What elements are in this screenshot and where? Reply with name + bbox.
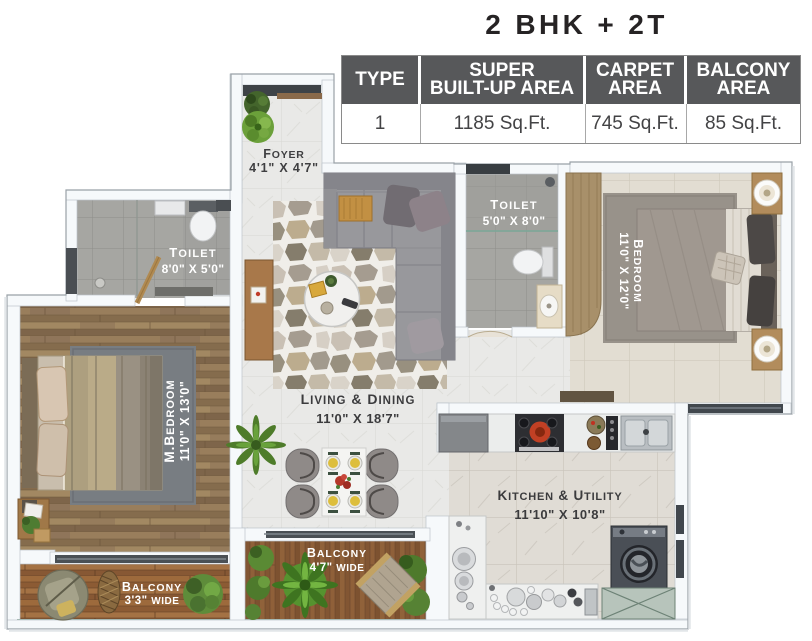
svg-text:4'7" WIDE: 4'7" WIDE <box>310 562 365 574</box>
svg-text:TOILET: TOILET <box>490 197 538 212</box>
svg-text:BALCONY: BALCONY <box>122 580 182 594</box>
svg-text:BEDROOM: BEDROOM <box>631 239 646 303</box>
svg-text:KITCHEN & UTILITY: KITCHEN & UTILITY <box>498 488 623 503</box>
svg-text:11'10" X 10'8": 11'10" X 10'8" <box>514 507 605 522</box>
svg-text:TOILET: TOILET <box>169 245 217 260</box>
svg-text:BALCONY: BALCONY <box>307 546 367 560</box>
svg-text:FOYER: FOYER <box>263 147 304 161</box>
svg-text:11'0" X 13'0": 11'0" X 13'0" <box>178 381 192 462</box>
svg-text:4'1" X 4'7": 4'1" X 4'7" <box>249 161 319 175</box>
svg-text:11'0" X 18'7": 11'0" X 18'7" <box>316 411 400 426</box>
svg-text:3'3" WIDE: 3'3" WIDE <box>125 595 180 607</box>
svg-text:8'0" X 5'0": 8'0" X 5'0" <box>162 262 225 276</box>
svg-text:11'0" X 12'0": 11'0" X 12'0" <box>617 232 631 310</box>
svg-text:M.BEDROOM: M.BEDROOM <box>162 379 177 462</box>
svg-text:5'0" X 8'0": 5'0" X 8'0" <box>483 214 546 228</box>
